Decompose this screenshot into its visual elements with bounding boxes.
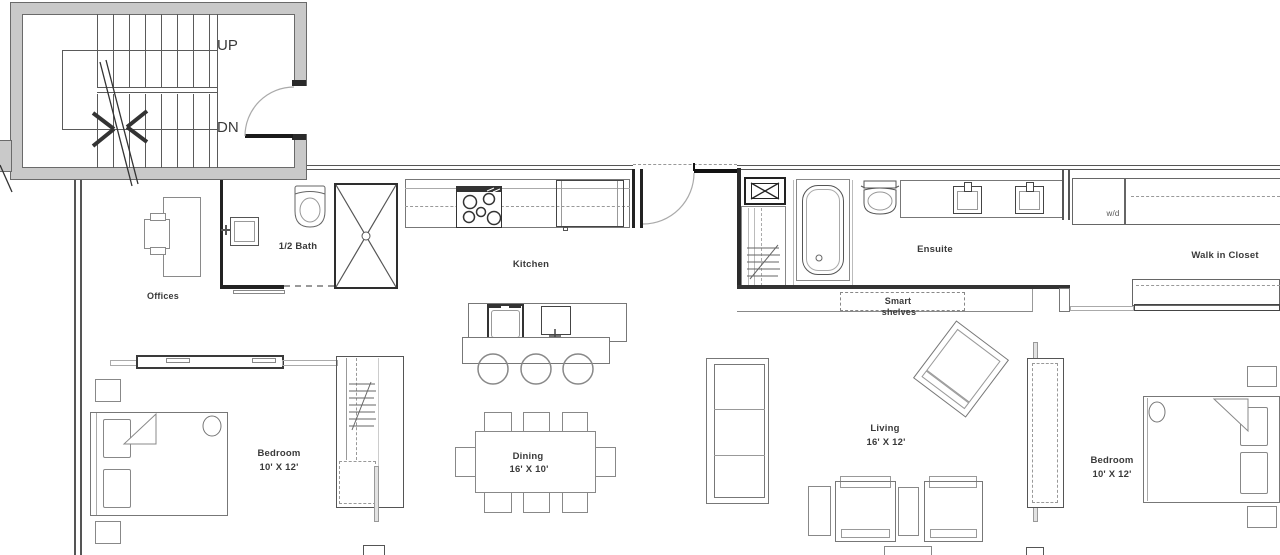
- office-chair: [150, 213, 166, 221]
- closet-low-box: [1059, 288, 1070, 312]
- fridge: [561, 181, 562, 226]
- living-dims: 16' X 12': [866, 437, 905, 448]
- shower-shaft: [334, 183, 398, 289]
- sliding-panel: [1032, 363, 1058, 503]
- bedroom-right-dims: 10' X 12': [1092, 469, 1131, 480]
- island-sink: [541, 306, 571, 335]
- dishwasher: [489, 305, 501, 308]
- washer-dryer-box: [751, 183, 779, 199]
- sofa: [714, 409, 765, 410]
- stairwell-door-leaf: [245, 134, 293, 138]
- nightstand: [1247, 506, 1277, 528]
- sliding-door-rail: [282, 360, 338, 366]
- wardrobe: [346, 358, 347, 460]
- bath-sink: [234, 221, 255, 242]
- entry-door-arc: [643, 173, 694, 224]
- armchair: [930, 529, 977, 538]
- dining-chair: [523, 412, 550, 432]
- dining-chair: [562, 412, 588, 432]
- smart-shelves-label: Smart: [885, 296, 912, 306]
- bathtub: [806, 189, 840, 271]
- entry-door-jamb: [632, 169, 635, 228]
- entry-closet: [761, 208, 762, 286]
- smart-shelves-label: shelves: [882, 307, 916, 317]
- closet-rod: [1134, 304, 1280, 311]
- ensuite-label: Ensuite: [917, 244, 953, 255]
- side-table: [898, 487, 919, 536]
- stairwell-door-jamb: [292, 80, 306, 86]
- wardrobe-drawer-dashed: [339, 461, 376, 504]
- left-exterior-wall: [74, 180, 82, 555]
- closet-wall: [1062, 170, 1064, 220]
- pillow: [103, 419, 131, 458]
- wardrobe: [356, 358, 357, 460]
- closet-low-rail: [1070, 306, 1134, 311]
- sofa: [714, 455, 765, 456]
- dn-label: DN: [217, 119, 239, 136]
- stairwell-door-jamb: [292, 134, 306, 140]
- nightstand: [1247, 366, 1277, 387]
- wd-label: w/d: [1106, 209, 1119, 218]
- fridge: [556, 180, 624, 227]
- bathtub-alcove: [793, 180, 794, 285]
- pillow: [103, 469, 131, 508]
- half-bath-door-dashed: [284, 285, 334, 287]
- toilet: [295, 186, 325, 227]
- cooktop: [456, 186, 502, 228]
- entry-door-leaf: [693, 163, 695, 171]
- stairwell-door-opening: [294, 86, 308, 134]
- island-counter: [462, 337, 610, 364]
- dining-chair: [523, 492, 550, 513]
- up-label: UP: [217, 37, 238, 54]
- closet-rod-dashed: [1131, 196, 1280, 198]
- dining-chair: [595, 447, 616, 477]
- bedroom-left-dims: 10' X 12': [259, 462, 298, 473]
- closet-rod-dashed: [1136, 285, 1280, 287]
- top-wall-east: [737, 165, 1280, 170]
- half-bath-label: 1/2 Bath: [279, 241, 318, 252]
- fridge-handle: [563, 227, 568, 231]
- vanity-sink: [1019, 191, 1040, 210]
- dining-chair: [455, 447, 476, 477]
- nightstand: [95, 379, 121, 402]
- closet-wall: [1068, 170, 1070, 220]
- bed-headboard: [96, 413, 97, 515]
- dishwasher: [491, 310, 520, 338]
- bathtub-alcove: [852, 180, 853, 285]
- armchair-rotated: [913, 320, 1009, 417]
- vanity-faucet: [1026, 182, 1034, 192]
- armchair: [841, 529, 890, 538]
- media-console: [884, 546, 932, 555]
- sliding-door-panel: [252, 358, 276, 363]
- bed-footboard: [1147, 398, 1148, 501]
- wardrobe-rod: [374, 466, 379, 522]
- stairwell-wall-stub: [0, 140, 12, 172]
- offices-label: Offices: [147, 291, 179, 301]
- toilet: [861, 181, 899, 214]
- half-bath-wall: [220, 285, 284, 289]
- bath-sink-faucet: [225, 225, 227, 235]
- dining-chair: [484, 492, 512, 513]
- vanity-sink: [957, 191, 978, 210]
- office-chair: [150, 247, 166, 255]
- dining-chair: [562, 492, 588, 513]
- pillow: [1240, 407, 1268, 446]
- stair-landing-rail: [62, 50, 218, 130]
- living-label: Living: [870, 423, 899, 434]
- sliding-panel-rod-end: [1026, 547, 1044, 555]
- dining-chair: [484, 412, 512, 432]
- floor-plan: UP DN Offices 1/2 Bath Kitchen: [0, 0, 1280, 555]
- kitchen-label: Kitchen: [513, 259, 549, 270]
- bedroom-right-label: Bedroom: [1090, 455, 1133, 466]
- entry-door-leaf: [694, 169, 738, 173]
- cooktop-controls: [456, 186, 502, 192]
- entry-closet: [748, 208, 749, 286]
- top-wall-west: [307, 165, 633, 170]
- half-bath-wall: [220, 180, 223, 289]
- sofa: [714, 364, 765, 498]
- office-chair: [144, 219, 170, 249]
- entry-door-jamb: [640, 169, 643, 228]
- fridge: [617, 181, 618, 226]
- half-bath-sliding-door: [233, 290, 285, 294]
- closet-shelf: [1132, 279, 1280, 306]
- walk-in-closet-label: Walk in Closet: [1191, 250, 1258, 261]
- entry-closet: [754, 208, 755, 286]
- dining-dims: 16' X 10': [509, 464, 548, 475]
- dining-label: Dining: [513, 451, 544, 462]
- side-table: [808, 486, 831, 536]
- dishwasher: [509, 305, 521, 308]
- vanity-faucet: [964, 182, 972, 192]
- entry-overhead-dashed: [633, 164, 737, 166]
- pillow: [1240, 452, 1268, 494]
- dining-table: [475, 431, 596, 493]
- sliding-door-panel: [166, 358, 190, 363]
- nightstand: [95, 521, 121, 544]
- bedroom-left-label: Bedroom: [257, 448, 300, 459]
- wardrobe-rod-end: [363, 545, 385, 555]
- closet-shelf: [1125, 178, 1280, 225]
